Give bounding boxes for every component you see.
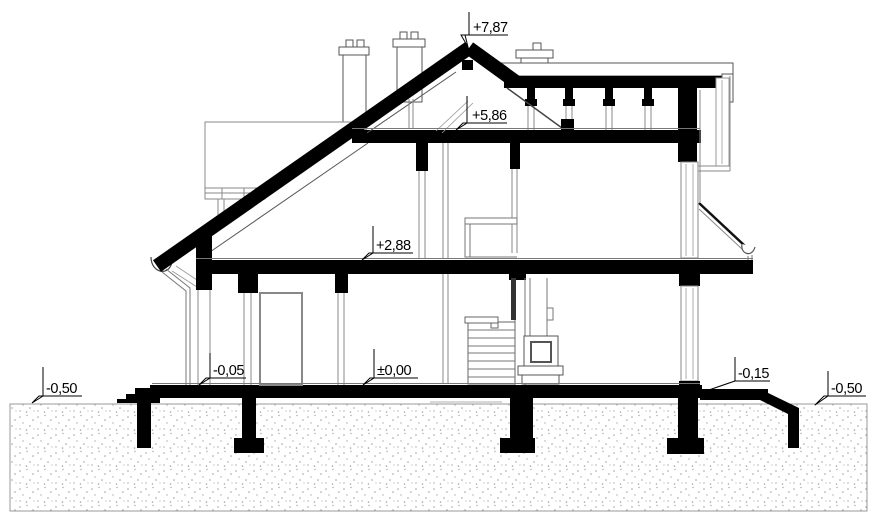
ground-slab (150, 385, 702, 398)
level-marker-first-floor: +2,88 (362, 226, 413, 260)
pent-roof (699, 203, 745, 246)
level-label-attic: +5,86 (472, 108, 507, 124)
eaves-left (151, 257, 197, 385)
stair-railing (465, 218, 517, 257)
first-floor-slab (196, 260, 753, 274)
gutter-right (742, 244, 755, 254)
level-marker-terrace: -0,15 (706, 357, 770, 391)
fireplace-door (531, 342, 551, 362)
downspout-left (162, 272, 186, 385)
roof-posts (525, 88, 654, 130)
level-label-ridge: +7,87 (473, 20, 508, 36)
section-drawing: +7,87 +5,86 +2,88 ±0,00 -0,05 -0,15 -0,5… (0, 0, 893, 520)
handrail (465, 317, 498, 323)
level-label-grade-right: -0,50 (831, 381, 862, 397)
upper-window (681, 162, 698, 258)
level-marker-grade-right: -0,50 (815, 371, 866, 405)
door-leaf (260, 293, 302, 385)
level-label-terrace: -0,15 (738, 366, 769, 382)
level-label-first-floor: +2,88 (376, 238, 411, 254)
level-label-ground-floor: ±0,00 (377, 363, 412, 379)
interior-walls-upper (416, 143, 520, 259)
level-marker-ridge: +7,87 (461, 12, 508, 47)
blueprint-canvas: +7,87 +5,86 +2,88 ±0,00 -0,05 -0,15 -0,5… (0, 0, 893, 520)
lower-window (681, 286, 698, 381)
right-column (678, 76, 697, 145)
attic-slab (352, 130, 701, 143)
level-label-grade-left: -0,50 (46, 381, 77, 397)
level-marker-ground-floor: ±0,00 (363, 349, 418, 385)
right-bay (697, 76, 755, 261)
terrace-slab (700, 389, 768, 400)
level-marker-grade-left: -0,50 (32, 367, 82, 403)
level-marker-attic: +5,86 (456, 96, 507, 130)
level-marker-entry: -0,05 (199, 353, 246, 385)
balcony-slab (700, 260, 753, 274)
ridge-purlin (462, 60, 473, 70)
stairs (465, 317, 515, 384)
level-label-entry: -0,05 (213, 363, 244, 379)
